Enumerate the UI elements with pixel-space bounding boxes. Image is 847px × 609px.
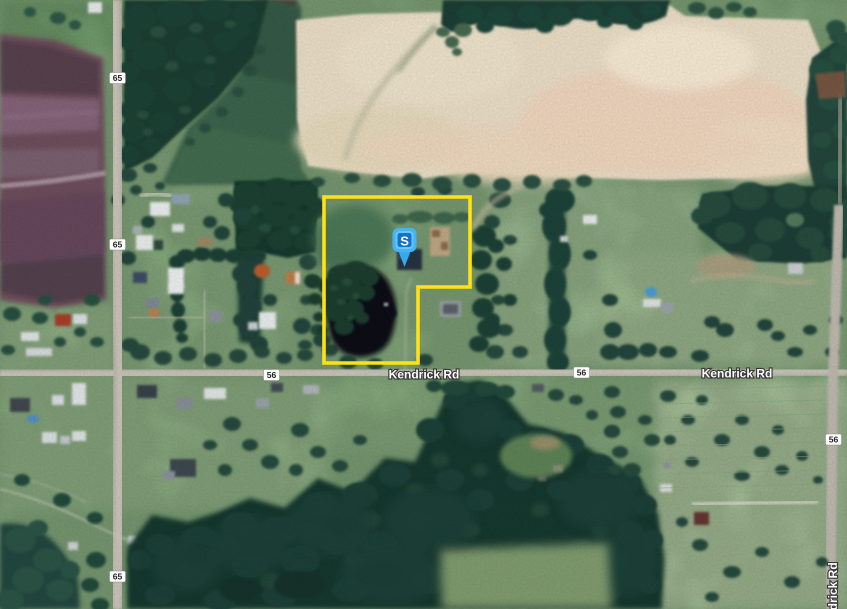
svg-text:Kendrick Rd: Kendrick Rd bbox=[389, 368, 460, 382]
svg-text:65: 65 bbox=[113, 572, 123, 582]
svg-text:65: 65 bbox=[113, 73, 123, 83]
svg-text:Kendrick Rd: Kendrick Rd bbox=[702, 367, 773, 381]
svg-text:56: 56 bbox=[577, 368, 587, 378]
svg-text:56: 56 bbox=[267, 370, 277, 380]
svg-text:65: 65 bbox=[113, 240, 123, 250]
svg-text:56: 56 bbox=[829, 435, 839, 445]
svg-text:S: S bbox=[400, 234, 409, 249]
svg-text:Kendrick Rd: Kendrick Rd bbox=[826, 562, 840, 609]
